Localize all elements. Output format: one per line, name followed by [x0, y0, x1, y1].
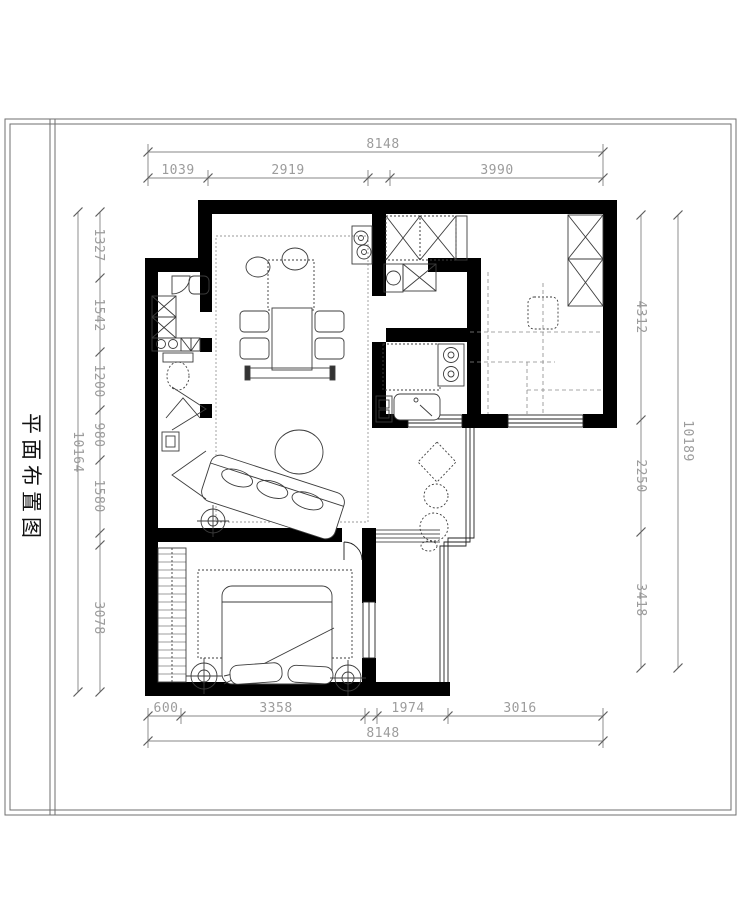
- drawing-title: 平面布置图: [19, 413, 43, 543]
- toilet-tank: [163, 353, 193, 362]
- balcony: [418, 442, 456, 551]
- balcony-plant-diamond: [418, 442, 456, 482]
- dim-top: 8148 1039 2919 3990: [144, 137, 608, 186]
- dim-left-seg-4: 980: [91, 423, 106, 448]
- corner-shelf: [172, 276, 190, 294]
- dim-left-seg-3: 1200: [91, 364, 106, 397]
- wardrobe-cell-3: [456, 216, 467, 260]
- bedroom2: [528, 215, 603, 329]
- window-bedroom2-south: [508, 415, 583, 427]
- balcony-glazing: [440, 428, 474, 682]
- wall-kitchen-north: [386, 328, 467, 342]
- wall-top: [205, 200, 617, 214]
- side-cabinet: [268, 260, 314, 310]
- frame-outer-border: [5, 119, 736, 815]
- dim-bottom: 600 3358 1974 3016 8148: [144, 701, 608, 748]
- dining-chair-round-1: [246, 257, 270, 277]
- dim-left-seg-6: 3078: [91, 601, 106, 634]
- bedroom1-door-arc: [344, 542, 362, 560]
- wall-kitchen-south-b: [462, 414, 508, 428]
- bench-cap-left: [245, 366, 250, 380]
- dim-left-seg-5: 1580: [91, 479, 106, 512]
- bench-cap-right: [330, 366, 335, 380]
- floor-plan-sheet: 平面布置图: [0, 0, 740, 900]
- dim-bottom-seg-3: 1974: [391, 701, 424, 716]
- round-rug: [275, 430, 323, 474]
- cooktop: [438, 344, 464, 386]
- kitchen-counter: [383, 344, 440, 390]
- dim-bottom-seg-1: 600: [154, 701, 179, 716]
- dim-right-seg-3: 3418: [633, 583, 648, 616]
- entry-cloak: [352, 216, 467, 292]
- wall-pillar-bath: [200, 338, 212, 352]
- layout-dashed-lines: [470, 272, 603, 414]
- sheet-frame: [5, 119, 736, 815]
- frame-inner-border: [10, 124, 731, 810]
- window-bedroom1-east: [363, 602, 375, 658]
- dining-table: [272, 308, 312, 370]
- closet-folding-doors: [162, 387, 206, 499]
- balcony-plant-3: [421, 541, 437, 551]
- dim-bottom-total: 8148: [366, 726, 399, 741]
- wc-folding-door: [166, 398, 200, 418]
- wall-bedroom2-south: [583, 414, 617, 428]
- dining-chair-round-2: [282, 248, 308, 270]
- dining-set: [240, 248, 344, 380]
- dim-left-total: 10164: [70, 431, 85, 473]
- dim-top-total: 8148: [366, 137, 399, 152]
- dining-chair-left-1: [240, 311, 269, 332]
- wall-kitchen-east: [467, 258, 481, 414]
- dim-left: 1327 1542 1200 980 1580 3078 10164: [70, 208, 106, 697]
- dining-chair-left-2: [240, 338, 269, 359]
- bedroom1: [158, 548, 366, 696]
- dim-bottom-seg-2: 3358: [259, 701, 292, 716]
- dim-left-seg-2: 1542: [91, 298, 106, 331]
- windows: [344, 415, 583, 682]
- floor-plan-drawing: 平面布置图: [0, 0, 740, 900]
- wall-bath-east: [200, 272, 212, 312]
- dim-top-seg-3: 3990: [480, 163, 513, 178]
- dim-top-seg-1: 1039: [161, 163, 194, 178]
- wall-right-upper: [603, 200, 617, 428]
- wall-bedroom1-east-upper: [362, 528, 376, 603]
- dim-top-seg-2: 2919: [271, 163, 304, 178]
- dim-right-total: 10189: [680, 420, 695, 462]
- toilet: [167, 362, 189, 390]
- dining-chair-right-2: [315, 338, 344, 359]
- pillow-2: [288, 665, 334, 684]
- pillow-1: [229, 662, 282, 685]
- dim-right-seg-2: 2250: [633, 459, 648, 492]
- dim-bottom-seg-4: 3016: [503, 701, 536, 716]
- dining-chair-right-1: [315, 311, 344, 332]
- wall-left: [145, 258, 158, 696]
- dim-right-seg-1: 4312: [633, 300, 648, 333]
- kitchen: [376, 344, 464, 422]
- balcony-plant-2: [420, 513, 448, 541]
- dim-right: 4312 2250 3418 10189: [633, 211, 695, 673]
- balcony-plant-1: [424, 484, 448, 508]
- dim-left-seg-1: 1327: [91, 228, 106, 261]
